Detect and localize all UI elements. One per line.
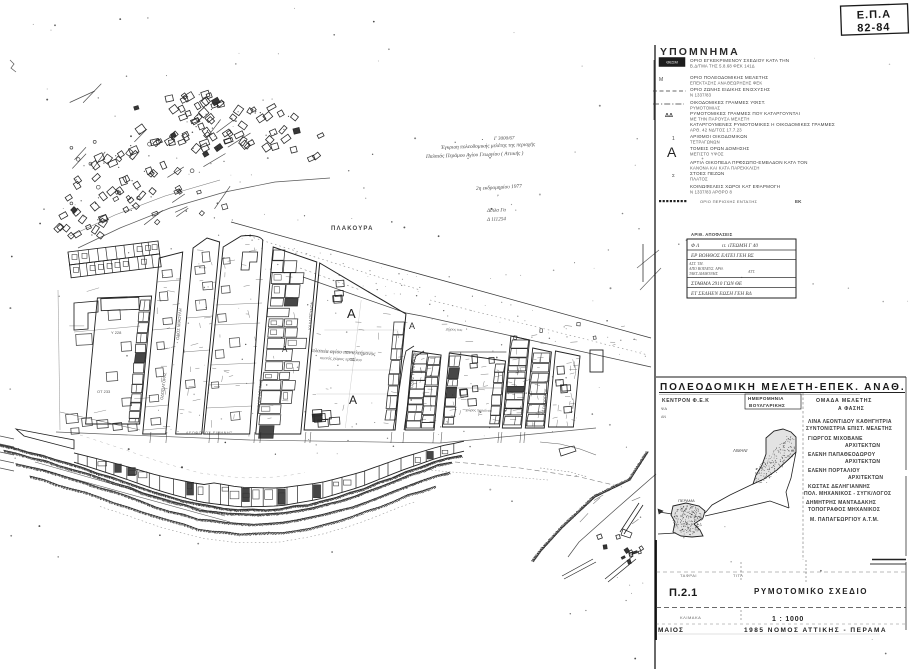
svg-text:Α: Α	[282, 345, 288, 354]
svg-text:ΠΛΑΚΟΥΡΑ: ΠΛΑΚΟΥΡΑ	[331, 226, 374, 232]
svg-text:ΑΡΙΘΜΟΙ ΟΙΚΟΔΟΜΙΚΩΝ: ΑΡΙΘΜΟΙ ΟΙΚΟΔΟΜΙΚΩΝ	[690, 134, 747, 139]
svg-text:Ν 1337/83: Ν 1337/83	[690, 93, 712, 98]
svg-text:ΚΑΤΑΡΓΟΥΜΕΝΕΣ ΡΥΜΟΤΟΜΙΚΕΣ Η ΟΙ: ΚΑΤΑΡΓΟΥΜΕΝΕΣ ΡΥΜΟΤΟΜΙΚΕΣ Η ΟΙΚΟΔΟΜΙΚΕΣ …	[690, 122, 835, 127]
svg-text:ΡΥΜΟΤΟΜΙΑΣ: ΡΥΜΟΤΟΜΙΑΣ	[690, 106, 720, 111]
svg-text:1 : 1000: 1 : 1000	[772, 616, 804, 623]
svg-text:Α: Α	[667, 144, 677, 160]
svg-text:ΠΟΛΕΟΔΟΜΙΚΗ ΜΕΛΕΤΗ-ΕΠΕΚ. ΑΝΑΘ: ΠΟΛΕΟΔΟΜΙΚΗ ΜΕΛΕΤΗ-ΕΠΕΚ. ΑΝΑΘ.	[660, 382, 906, 393]
svg-text:ΜΕΓΙΣΤΟ ΥΨΟΣ: ΜΕΓΙΣΤΟ ΥΨΟΣ	[690, 152, 724, 157]
svg-text:Δίπλα Γα: Δίπλα Γα	[486, 207, 506, 214]
svg-text:ΔΗΜΗΤΡΗΣ ΜΑΝΤΑΔΑΚΗΣ: ΔΗΜΗΤΡΗΣ ΜΑΝΤΑΔΑΚΗΣ	[806, 500, 876, 506]
svg-text:ΗΜΕΡΟΜΗΝΙΑ: ΗΜΕΡΟΜΗΝΙΑ	[748, 396, 784, 401]
svg-text:χώρος πρασίνου: χώρος πρασίνου	[465, 407, 492, 413]
svg-text:ΜΑΙΟΣ: ΜΑΙΟΣ	[658, 627, 684, 634]
svg-text:ΣΤΑΘΜΑ 2910 ΓΩΝ ΘΕ: ΣΤΑΘΜΑ 2910 ΓΩΝ ΘΕ	[690, 281, 743, 287]
svg-text:ΤΕΤΡΑΓΩΝΩΝ: ΤΕΤΡΑΓΩΝΩΝ	[690, 140, 720, 145]
svg-text:ΠΟΛ. ΜΗΧΑΝΙΚΟΣ - ΣΥΓΚ/ΛΟΓΟΣ: ΠΟΛ. ΜΗΧΑΝΙΚΟΣ - ΣΥΓΚ/ΛΟΓΟΣ	[804, 491, 891, 497]
svg-text:ΘΕΣΜ: ΘΕΣΜ	[666, 60, 678, 65]
svg-text:ΤΟΠΟΓΡΑΦΟΣ ΜΗΧΑΝΙΚΟΣ: ΤΟΠΟΓΡΑΦΟΣ ΜΗΧΑΝΙΚΟΣ	[808, 507, 880, 513]
svg-text:ΑΡΘ. 42 ΝΔ/ΤΟΣ 17.7.23: ΑΡΘ. 42 ΝΔ/ΤΟΣ 17.7.23	[690, 128, 742, 133]
svg-text:ΟΤ 233: ΟΤ 233	[97, 389, 111, 394]
svg-text:Μ: Μ	[659, 77, 663, 83]
svg-text:ΤΑΦΡΑΙ: ΤΑΦΡΑΙ	[680, 573, 697, 578]
svg-text:ΟΡΙΟ ΠΟΛΕΟΔΟΜΙΚΗΣ ΜΕΛΕΤΗΣ: ΟΡΙΟ ΠΟΛΕΟΔΟΜΙΚΗΣ ΜΕΛΕΤΗΣ	[690, 75, 768, 80]
svg-text:ΑΤΤ.: ΑΤΤ.	[747, 270, 755, 274]
svg-text:ΑΡΤΙΑ ΟΙΚΟΠΕΔΑ ΠΡΟΣΩΠΟ-ΕΜΒΑΔΟΝ: ΑΡΤΙΑ ΟΙΚΟΠΕΔΑ ΠΡΟΣΩΠΟ-ΕΜΒΑΔΟΝ ΚΑΤΑ ΤΟΝ	[690, 160, 808, 165]
svg-text:Γ 3000/67: Γ 3000/67	[493, 136, 515, 142]
svg-text:1985 ΝΟΜΟΣ ΑΤΤΙΚΗΣ - ΠΕΡΑΜΑ: 1985 ΝΟΜΟΣ ΑΤΤΙΚΗΣ - ΠΕΡΑΜΑ	[744, 627, 887, 634]
svg-text:ΛΙΝΑ ΛΕΟΝΤΙΔΟΥ ΚΑΘΗΓΗΤΡΙΑ: ΛΙΝΑ ΛΕΟΝΤΙΔΟΥ ΚΑΘΗΓΗΤΡΙΑ	[808, 419, 892, 425]
svg-text:82-84: 82-84	[857, 21, 891, 34]
svg-text:ΔΔ: ΔΔ	[665, 113, 673, 119]
svg-text:Α: Α	[349, 393, 357, 407]
svg-text:ΣΤΟΕΣ ΠΕΖΩΝ: ΣΤΟΕΣ ΠΕΖΩΝ	[690, 171, 724, 176]
svg-text:ΒΟΥΛΓΑΡΙΚΗΣ: ΒΟΥΛΓΑΡΙΚΗΣ	[749, 403, 785, 408]
svg-text:ΜΕ ΤΗΝ ΠΑΡΟΥΣΑ ΜΕΛΕΤΗ: ΜΕ ΤΗΝ ΠΑΡΟΥΣΑ ΜΕΛΕΤΗ	[690, 117, 750, 122]
svg-text:ΟΡΙΟ ΠΕΡΙΟΧΗΣ ΕΝΤΑΞΗΣ: ΟΡΙΟ ΠΕΡΙΟΧΗΣ ΕΝΤΑΞΗΣ	[700, 199, 758, 204]
svg-text:ΟΜΑΔΑ ΜΕΛΕΤΗΣ: ΟΜΑΔΑ ΜΕΛΕΤΗΣ	[816, 398, 872, 404]
svg-text:ΑΡΧΙΤΕΚΤΩΝ: ΑΡΧΙΤΕΚΤΩΝ	[845, 443, 880, 449]
svg-text:ΠΕΡΑΜΑ: ΠΕΡΑΜΑ	[678, 498, 695, 503]
svg-text:Β.Δ/ΓΜΑ ΤΗΣ 5.8.68 ΦΕΚ 141Δ: Β.Δ/ΓΜΑ ΤΗΣ 5.8.68 ΦΕΚ 141Δ	[690, 64, 755, 69]
svg-text:μ: μ	[497, 193, 499, 197]
svg-text:Δ 111254: Δ 111254	[486, 215, 507, 223]
svg-text:ΓΙΩΡΓΟΣ ΜΙΧΟΒΑΝΕ: ΓΙΩΡΓΟΣ ΜΙΧΟΒΑΝΕ	[808, 436, 863, 442]
svg-text:ΡΥΜΟΤΟΜΙΚΟ ΣΧΕΔΙΟ: ΡΥΜΟΤΟΜΙΚΟ ΣΧΕΔΙΟ	[754, 587, 868, 596]
svg-text:ΑΡΙΘ. ΑΠΟΦΑΣΕΙΣ: ΑΡΙΘ. ΑΠΟΦΑΣΕΙΣ	[691, 232, 733, 237]
svg-text:Π.2.1: Π.2.1	[669, 587, 698, 599]
svg-text:ΛΙΜΑΝΙ: ΛΙΜΑΝΙ	[732, 448, 748, 453]
svg-text:ΕΚ: ΕΚ	[795, 199, 802, 204]
svg-text:ΕΤ ΣΕΔΗΕΝ ΕΩΣΗ ΓΕΗ ΒΔ: ΕΤ ΣΕΔΗΕΝ ΕΩΣΗ ΓΕΗ ΒΔ	[690, 291, 752, 297]
svg-text:ΨΑ: ΨΑ	[661, 406, 667, 411]
svg-text:ΚΩΣΤΑΣ ΔΕΛΗΓΙΑΝΝΗΣ: ΚΩΣΤΑΣ ΔΕΛΗΓΙΑΝΝΗΣ	[808, 484, 870, 490]
svg-text:ΤΙΤΛ: ΤΙΤΛ	[733, 573, 743, 578]
svg-text:ιτ. ιΤΕΩΜΗ Γ 40: ιτ. ιΤΕΩΜΗ Γ 40	[722, 242, 758, 249]
svg-text:ΑΠΟ ΒΟΥΛΕΥΣ. ΑΡΘ.: ΑΠΟ ΒΟΥΛΕΥΣ. ΑΡΘ.	[688, 267, 724, 271]
svg-text:ΟΡΙΟ ΖΩΝΗΣ ΕΙΔΙΚΗΣ ΕΝΙΣΧΥΣΗΣ: ΟΡΙΟ ΖΩΝΗΣ ΕΙΔΙΚΗΣ ΕΝΙΣΧΥΣΗΣ	[690, 87, 770, 92]
svg-text:Υ 228: Υ 228	[111, 330, 122, 335]
svg-text:ΚΛΙΜΑΚΑ: ΚΛΙΜΑΚΑ	[680, 615, 701, 620]
svg-text:Α: Α	[347, 306, 356, 321]
svg-text:ΤΑΚΤ.ΔΙΑΜΟΝΗΣ: ΤΑΚΤ.ΔΙΑΜΟΝΗΣ	[689, 272, 718, 276]
svg-text:ΣΥΝΤΟΝΙΣΤΡΙΑ ΕΠΙΣΤ. ΜΕΛΕΤΗΣ: ΣΥΝΤΟΝΙΣΤΡΙΑ ΕΠΙΣΤ. ΜΕΛΕΤΗΣ	[806, 426, 892, 432]
svg-text:ΚΑΝΟΝΑ ΚΑΙ ΚΑΤΑ ΠΑΡΕΚΚΛΙΣΗ: ΚΑΝΟΝΑ ΚΑΙ ΚΑΤΑ ΠΑΡΕΚΚΛΙΣΗ	[690, 166, 760, 171]
svg-text:ΕΛΕΝΗ ΠΟΡΤΑΛΙΟΥ: ΕΛΕΝΗ ΠΟΡΤΑΛΙΟΥ	[808, 468, 860, 474]
svg-text:Σ: Σ	[672, 173, 675, 178]
svg-text:Μ. ΠΑΠΑΓΕΩΡΓΙΟΥ Α.Τ.Μ.: Μ. ΠΑΠΑΓΕΩΡΓΙΟΥ Α.Τ.Μ.	[810, 517, 879, 523]
svg-text:1: 1	[672, 136, 675, 142]
svg-text:ΡΥΜΟΤΟΜΙΚΕΣ ΓΡΑΜΜΕΣ ΠΟΥ ΚΑΤΑΡΓ: ΡΥΜΟΤΟΜΙΚΕΣ ΓΡΑΜΜΕΣ ΠΟΥ ΚΑΤΑΡΓΟΥΝΤΑΙ	[690, 111, 800, 116]
svg-text:ΚΕΝΤΡΟΝ Φ.Ε.Κ: ΚΕΝΤΡΟΝ Φ.Ε.Κ	[662, 398, 709, 404]
svg-text:ΑΝ: ΑΝ	[661, 415, 666, 419]
svg-text:Α ΦΑΣΗΣ: Α ΦΑΣΗΣ	[838, 406, 864, 412]
svg-text:ΠΛΑΤΟΣ: ΠΛΑΤΟΣ	[690, 177, 708, 182]
svg-text:ΟΡΙΟ ΕΓΚΕΚΡΙΜΕΝΟΥ ΣΧΕΔΙΟΥ ΚΑΤΑ: ΟΡΙΟ ΕΓΚΕΚΡΙΜΕΝΟΥ ΣΧΕΔΙΟΥ ΚΑΤΑ ΤΗΝ	[690, 58, 789, 63]
svg-text:Ν 1337/83 ΑΡΘΡΟ 8: Ν 1337/83 ΑΡΘΡΟ 8	[690, 190, 733, 195]
svg-text:Ε.Π.Α: Ε.Π.Α	[857, 8, 892, 21]
svg-text:ΚΟΙΝΩΦΕΛΕΙΣ ΧΩΡΟΙ ΚΑΤ ΕΦΑΡΜΟΓΗ: ΚΟΙΝΩΦΕΛΕΙΣ ΧΩΡΟΙ ΚΑΤ ΕΦΑΡΜΟΓΗ	[690, 184, 780, 189]
svg-text:ΕΠΕΚΤΑΣΗΣ ΑΝΑΘΕΩΡΗΣΗΣ ΦΕΚ: ΕΠΕΚΤΑΣΗΣ ΑΝΑΘΕΩΡΗΣΗΣ ΦΕΚ	[690, 81, 762, 86]
svg-text:Α: Α	[409, 321, 415, 331]
svg-text:ΟΙΚΟΔΟΜΙΚΕΣ ΓΡΑΜΜΕΣ ΥΦΙΣΤ.: ΟΙΚΟΔΟΜΙΚΕΣ ΓΡΑΜΜΕΣ ΥΦΙΣΤ.	[690, 100, 766, 105]
svg-text:ΤΟΜΕΙΣ ΟΡΩΝ ΔΟΜΗΣΗΣ: ΤΟΜΕΙΣ ΟΡΩΝ ΔΟΜΗΣΗΣ	[690, 146, 749, 151]
svg-text:ΕΡ ΒΟΗΘΟΣ ΕΛΤΕΙ ΓΕΗ ΒΣ: ΕΡ ΒΟΗΘΟΣ ΕΛΤΕΙ ΓΕΗ ΒΣ	[690, 253, 754, 259]
svg-text:ΥΠΟΜΝΗΜΑ: ΥΠΟΜΝΗΜΑ	[660, 46, 740, 58]
svg-text:ΕΛΕΝΗ ΠΑΠΑΘΕΟΔΩΡΟΥ: ΕΛΕΝΗ ΠΑΠΑΘΕΟΔΩΡΟΥ	[808, 452, 876, 458]
svg-text:ΑΣΤ. ΤΜ.: ΑΣΤ. ΤΜ.	[688, 262, 704, 266]
svg-text:Φ Λ: Φ Λ	[691, 243, 700, 249]
svg-text:ΑΡΧΙΤΕΚΤΩΝ: ΑΡΧΙΤΕΚΤΩΝ	[845, 459, 880, 465]
svg-text:ΑΡΧΙΤΕΚΤΩΝ: ΑΡΧΙΤΕΚΤΩΝ	[848, 475, 883, 481]
